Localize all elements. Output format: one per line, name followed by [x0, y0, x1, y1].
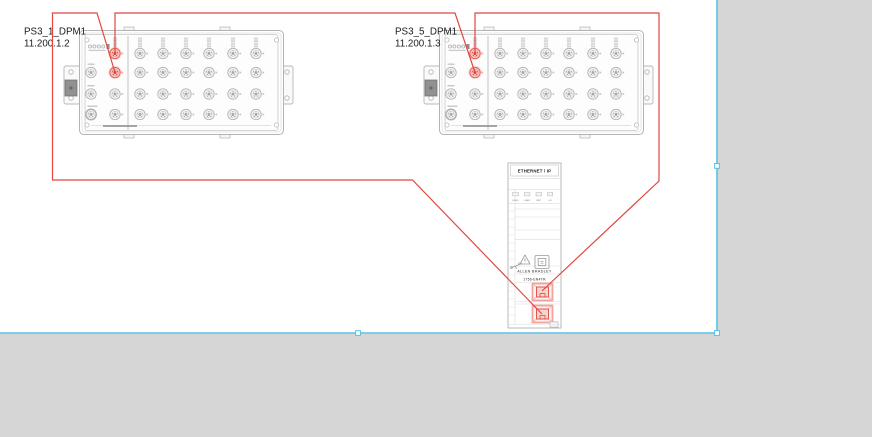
module-port-1[interactable] — [533, 284, 553, 301]
led-label-link2: LINK2 — [524, 200, 531, 202]
led-label-ok: OK — [549, 200, 553, 202]
device-1-ip: 11.200.1.2 — [24, 39, 70, 50]
module-body — [508, 163, 561, 328]
selection-handle-corner[interactable] — [715, 331, 720, 336]
module-foot — [550, 322, 558, 328]
led-label-net: NET — [537, 200, 542, 202]
device-1-name: PS3_1_DPM1 — [24, 27, 86, 38]
module-brand: ALLEN BRADLEY — [517, 269, 552, 273]
led-link2 — [524, 193, 530, 196]
led-link1 — [513, 193, 519, 196]
port1-inner — [537, 287, 549, 297]
selection-handle-bottom[interactable] — [356, 331, 361, 336]
module-model: 1756-EN4TR — [523, 277, 546, 281]
device-2-ip: 11.200.1.3 — [395, 39, 441, 50]
led-label-link1: LINK1 — [512, 200, 519, 202]
module-header: ETHERNET / IP — [518, 169, 551, 174]
device-ps3-5-dpm1[interactable] — [424, 27, 653, 138]
ethernet-module[interactable]: ETHERNET / IP LINK1 LINK2 NET OK ALLEN B… — [508, 163, 561, 328]
device-ps3-1-dpm1[interactable] — [64, 27, 293, 138]
device-2-name: PS3_5_DPM1 — [395, 27, 457, 38]
selection-handle-right[interactable] — [715, 164, 720, 169]
led-ok — [548, 193, 553, 196]
led-net — [536, 193, 542, 196]
